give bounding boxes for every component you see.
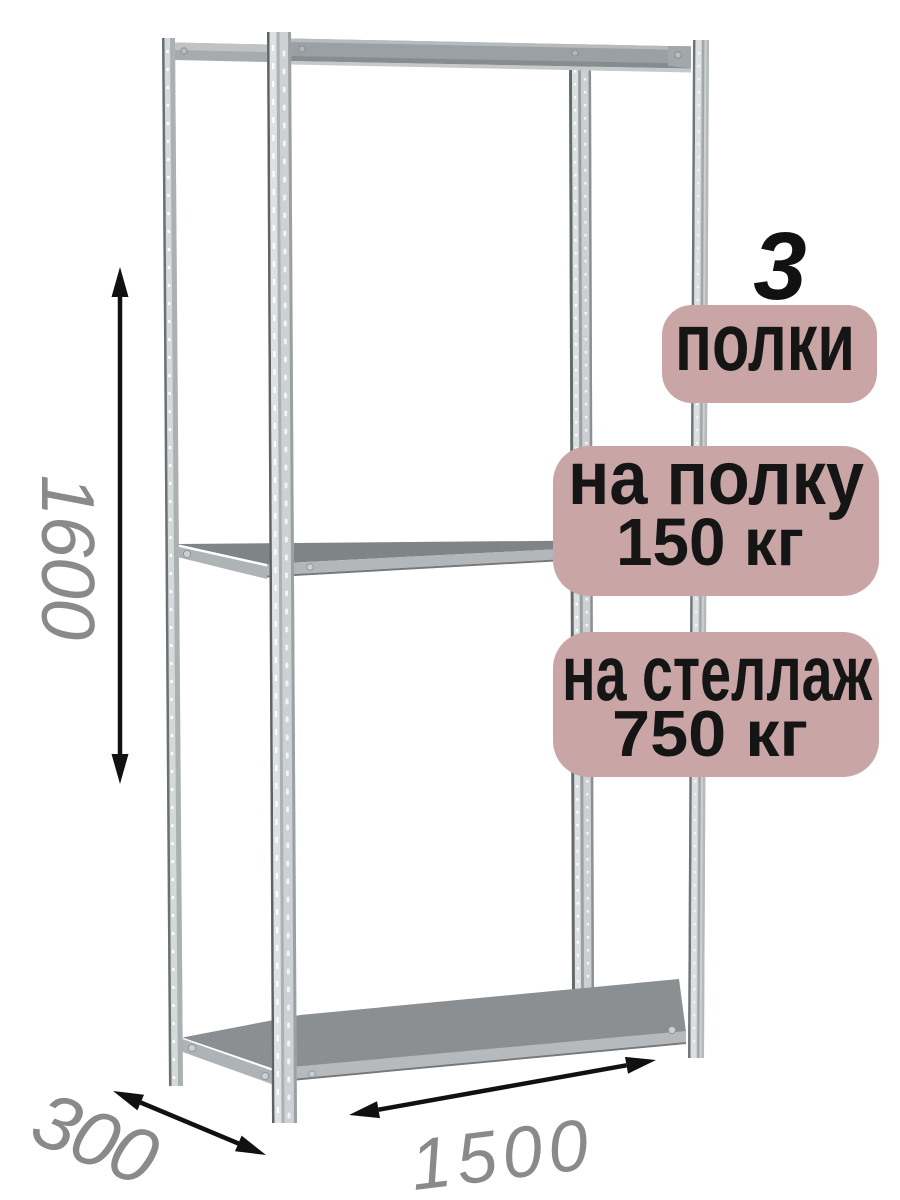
svg-text:полки: полки <box>675 297 855 388</box>
svg-text:750 кг: 750 кг <box>612 697 808 770</box>
svg-text:1600: 1600 <box>26 475 110 641</box>
svg-text:150 кг: 150 кг <box>616 505 804 580</box>
